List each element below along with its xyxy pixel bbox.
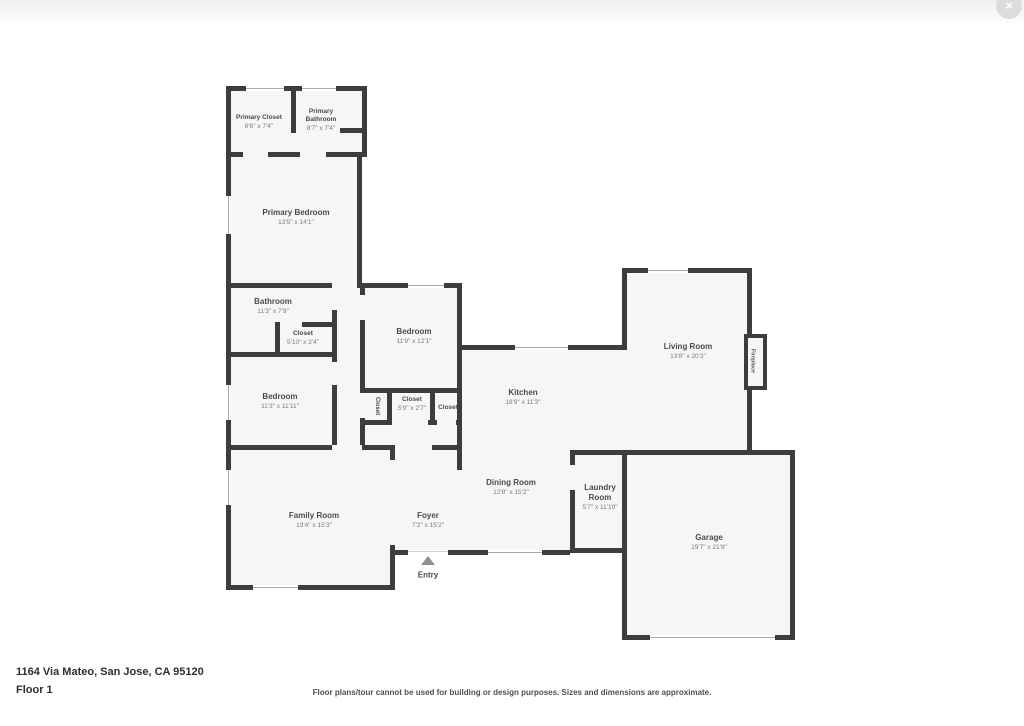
wall-segment — [360, 320, 365, 388]
window — [226, 385, 231, 420]
room-label-fireplace: Fireplace — [749, 349, 756, 373]
wall-segment — [570, 490, 575, 550]
room-label-closet-right: Closet — [438, 404, 458, 412]
wall-segment — [568, 345, 627, 350]
room-label-bedroom-middle: Bedroom11'9" x 12'1" — [396, 327, 431, 345]
wall-segment — [622, 450, 795, 455]
wall-segment — [775, 635, 795, 640]
wall-segment — [226, 585, 253, 590]
disclaimer-text: Floor plans/tour cannot be used for buil… — [0, 688, 1024, 697]
wall-segment — [570, 455, 575, 465]
wall-segment — [360, 388, 462, 393]
wall-segment — [462, 345, 515, 350]
window — [302, 86, 336, 91]
wall-segment — [360, 283, 408, 288]
wall-segment — [226, 86, 231, 196]
room-label-bedroom-left: Bedroom11'3" x 11'11" — [261, 392, 299, 410]
window — [253, 585, 298, 590]
wall-segment — [688, 268, 752, 273]
entry-threshold — [408, 551, 448, 552]
room-label-primary-bedroom: Primary Bedroom13'5" x 14'1" — [262, 208, 329, 226]
window — [246, 86, 284, 91]
wall-segment — [357, 152, 362, 288]
room-label-closet-middle: Closet5'9" x 2'7" — [398, 396, 426, 412]
room-label-closet-bath: Closet5'10" x 2'4" — [287, 330, 319, 346]
floor-plan-viewer: × Primary Closet6'6" x 7'4" Primary Bath… — [0, 0, 1024, 726]
window — [515, 345, 568, 350]
wall-segment — [226, 234, 231, 385]
window — [226, 470, 231, 505]
wall-segment — [390, 445, 395, 460]
room-label-primary-bathroom: Primary Bathroom8'7" x 7'4" — [295, 108, 347, 132]
wall-segment — [622, 268, 627, 350]
wall-segment — [457, 283, 462, 470]
window — [408, 283, 444, 288]
wall-segment — [456, 420, 462, 425]
wall-segment — [226, 283, 332, 288]
wall-segment — [747, 389, 752, 455]
entry-arrow-icon — [421, 556, 435, 565]
wall-segment — [360, 420, 392, 425]
room-label-garage: Garage19'7" x 21'9" — [691, 533, 727, 551]
wall-segment — [298, 585, 395, 590]
wall-segment — [432, 445, 462, 450]
wall-segment — [448, 550, 488, 555]
entry-label: Entry — [418, 571, 438, 580]
wall-segment — [622, 635, 650, 640]
room-area — [226, 283, 360, 450]
room-label-family-room: Family Room19'4" x 15'3" — [289, 511, 339, 529]
wall-segment — [226, 505, 231, 590]
wall-segment — [332, 310, 337, 362]
wall-segment — [226, 445, 332, 450]
wall-segment — [332, 385, 337, 445]
wall-segment — [362, 86, 367, 152]
window — [226, 196, 231, 234]
fireplace-structure — [744, 334, 767, 390]
room-label-laundry-room: Laundry Room5'7" x 11'10" — [577, 483, 623, 511]
floor-plan-canvas: Primary Closet6'6" x 7'4" Primary Bathro… — [0, 0, 1024, 726]
wall-segment — [570, 450, 627, 455]
wall-segment — [428, 420, 437, 425]
wall-segment — [747, 268, 752, 335]
room-label-living-room: Living Room13'8" x 20'3" — [664, 342, 712, 360]
window — [650, 635, 775, 640]
property-address: 1164 Via Mateo, San Jose, CA 95120 — [16, 666, 204, 678]
window — [648, 268, 688, 273]
room-label-foyer: Foyer7'2" x 15'2" — [412, 511, 444, 529]
wall-segment — [302, 322, 332, 327]
wall-segment — [570, 548, 627, 553]
wall-segment — [390, 545, 395, 590]
room-label-bathroom: Bathroom11'3" x 7'9" — [254, 297, 292, 315]
wall-segment — [542, 550, 570, 555]
room-area — [622, 268, 752, 455]
room-label-kitchen: Kitchen18'9" x 11'3" — [505, 388, 540, 406]
window — [488, 550, 542, 555]
room-label-closet-left: Closet — [372, 397, 380, 415]
wall-segment — [790, 450, 795, 640]
room-label-dining-room: Dining Room12'8" x 15'2" — [486, 478, 536, 496]
wall-segment — [268, 152, 300, 157]
wall-segment — [226, 352, 332, 357]
room-label-primary-closet: Primary Closet6'6" x 7'4" — [236, 114, 282, 130]
